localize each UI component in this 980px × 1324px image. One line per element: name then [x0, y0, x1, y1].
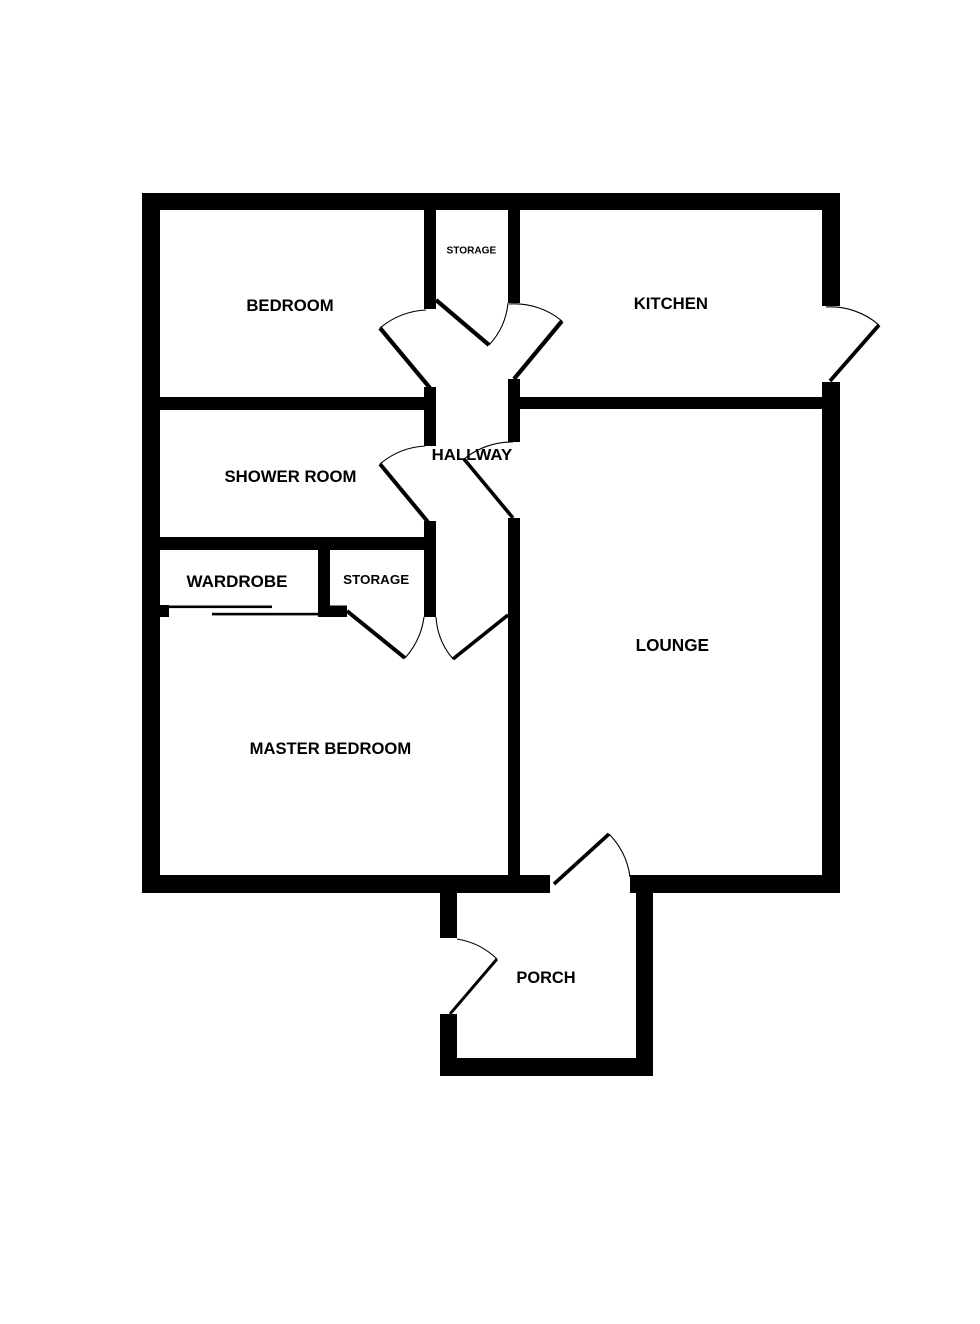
- svg-text:KITCHEN: KITCHEN: [634, 294, 708, 313]
- svg-text:STORAGE: STORAGE: [343, 572, 409, 587]
- svg-text:STORAGE: STORAGE: [447, 246, 497, 257]
- svg-text:BEDROOM: BEDROOM: [246, 296, 333, 315]
- svg-text:HALLWAY: HALLWAY: [432, 446, 513, 464]
- svg-text:WARDROBE: WARDROBE: [187, 572, 288, 591]
- svg-text:PORCH: PORCH: [516, 969, 575, 987]
- svg-text:LOUNGE: LOUNGE: [636, 635, 709, 655]
- svg-text:MASTER BEDROOM: MASTER BEDROOM: [250, 739, 412, 758]
- svg-text:SHOWER ROOM: SHOWER ROOM: [225, 467, 357, 486]
